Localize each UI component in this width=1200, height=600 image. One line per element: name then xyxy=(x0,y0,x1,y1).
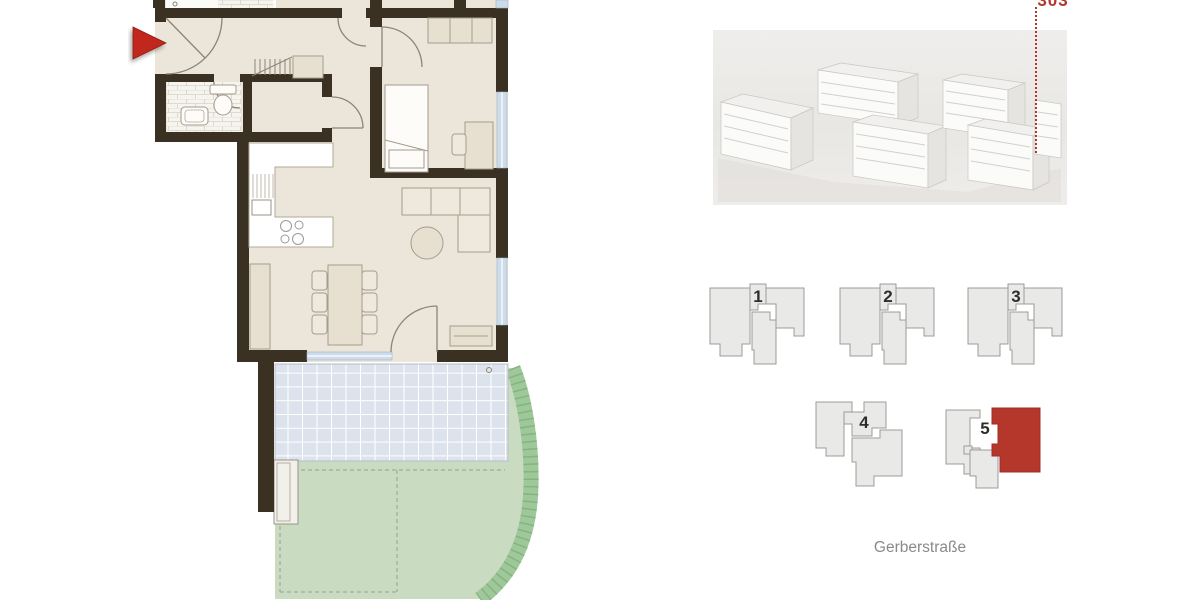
unit-leader-line-icon xyxy=(1035,7,1037,153)
terrace-tiles xyxy=(275,364,508,461)
site-plan-building-5: 5 xyxy=(942,402,1044,492)
building-1-number: 1 xyxy=(753,287,762,306)
brochure-page: 303 1 2 3 4 5 Gerberstraße xyxy=(0,0,1200,600)
planter xyxy=(274,460,298,524)
building-5-number: 5 xyxy=(980,419,989,438)
building-2-number: 2 xyxy=(883,287,892,306)
aerial-rendering-panel xyxy=(713,30,1067,205)
site-plan-building-4: 4 xyxy=(812,396,918,490)
upper-room-tiles xyxy=(218,0,273,8)
street-label: Gerberstraße xyxy=(830,539,1010,557)
wardrobe xyxy=(428,18,492,43)
building-3-number: 3 xyxy=(1011,287,1020,306)
site-plan-building-2: 2 xyxy=(836,280,940,372)
dining-table xyxy=(328,265,362,345)
toilet-tank xyxy=(210,85,236,94)
highlighted-unit-location xyxy=(992,408,1040,472)
building-4-number: 4 xyxy=(859,413,869,432)
hall-cabinet xyxy=(293,56,323,78)
site-plan-building-1: 1 xyxy=(706,280,810,372)
aerial-rendering xyxy=(713,30,1067,205)
apartment-floorplan xyxy=(128,0,548,600)
site-plan-building-3: 3 xyxy=(964,280,1068,372)
window-top xyxy=(496,0,508,8)
desk xyxy=(465,122,493,169)
bed xyxy=(385,85,428,172)
coffee-table xyxy=(411,227,443,259)
desk-chair xyxy=(452,134,466,155)
sideboard xyxy=(250,264,270,349)
unit-number-label: 303 xyxy=(1031,0,1075,11)
toilet-bowl xyxy=(214,95,232,115)
